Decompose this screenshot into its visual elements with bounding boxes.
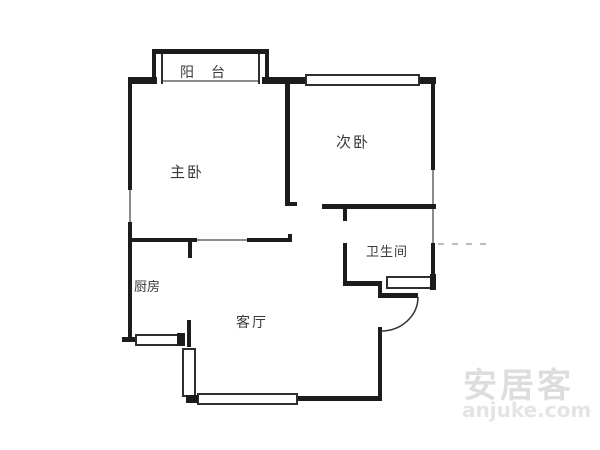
room-label-bathroom: 卫生间 — [366, 241, 408, 260]
room-label-second-bedroom: 次卧 — [336, 131, 370, 152]
room-label-balcony: 阳台 — [180, 62, 242, 82]
room-label-master-bedroom: 主卧 — [170, 161, 204, 182]
room-label-living-room: 客厅 — [236, 312, 268, 332]
room-label-kitchen: 厨房 — [134, 276, 160, 295]
floorplan-canvas: 阳台 主卧 次卧 卫生间 厨房 客厅 安居客 anjuke.com — [0, 0, 600, 450]
entry-door-arc — [381, 297, 418, 331]
watermark-site: anjuke.com — [462, 398, 591, 422]
